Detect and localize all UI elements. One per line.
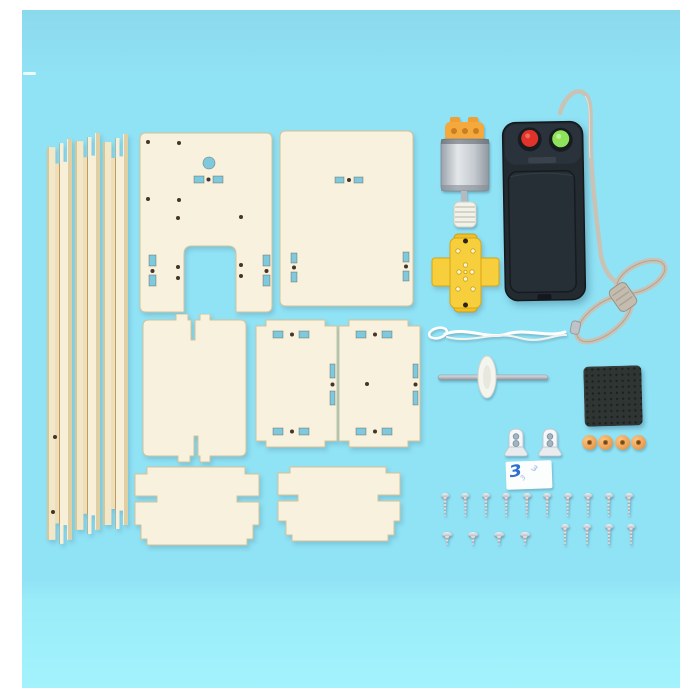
battery-door xyxy=(508,171,576,293)
pull-string xyxy=(425,318,575,350)
screw xyxy=(482,493,490,518)
axle-bracket xyxy=(503,427,529,458)
screw xyxy=(564,493,572,518)
coupler-pin-hole xyxy=(463,239,468,244)
screw xyxy=(583,524,591,547)
panel-side-right xyxy=(337,318,423,452)
panel-side-left xyxy=(254,318,340,452)
battery-controller xyxy=(498,116,602,308)
pulley-wheels xyxy=(582,435,646,450)
backdrop-glint xyxy=(23,72,36,75)
panel-gantry xyxy=(138,131,276,315)
dc-motor xyxy=(437,113,493,231)
panel-plain xyxy=(141,314,248,464)
screw xyxy=(605,493,613,518)
screw xyxy=(461,493,469,518)
screw xyxy=(502,493,510,518)
wooden-rail xyxy=(103,134,128,533)
axle-brackets xyxy=(503,427,563,458)
pulley-wheel xyxy=(615,435,630,450)
screw xyxy=(627,524,635,547)
screws-medium-row xyxy=(561,524,635,547)
screw xyxy=(520,532,530,548)
screw xyxy=(442,532,452,548)
screws-long-row xyxy=(441,493,633,518)
wooden-rail xyxy=(47,139,72,548)
controller-label-area xyxy=(528,157,556,163)
screw xyxy=(625,493,633,518)
wooden-rail xyxy=(75,133,100,538)
motor-shaft xyxy=(461,191,467,202)
panel-round-hole xyxy=(203,157,215,169)
panel-cabin-right xyxy=(276,465,408,547)
bracket-hole xyxy=(547,434,553,440)
sticker-faint-mark: 3 xyxy=(530,463,538,473)
panel-back xyxy=(278,129,415,308)
wooden-rails xyxy=(47,133,128,548)
screw xyxy=(584,493,592,518)
rail-hole xyxy=(51,510,55,514)
screws-flat-row xyxy=(442,532,530,548)
screw xyxy=(543,493,551,518)
sticker-faint-mark: 3 xyxy=(519,474,528,482)
bracket-hole xyxy=(513,434,519,440)
pulley-wheel xyxy=(582,435,597,450)
screw xyxy=(561,524,569,547)
screw xyxy=(494,532,504,548)
axle-bracket xyxy=(537,427,563,458)
screw xyxy=(523,493,531,518)
pulley-wheel xyxy=(631,435,646,450)
cross-coupler xyxy=(428,232,504,314)
coupler-pin-hole xyxy=(463,303,468,308)
adhesive-sticker: 3 3 3 xyxy=(506,460,553,490)
bracket-hole xyxy=(513,441,519,447)
screw xyxy=(605,524,613,547)
panel-cabin-left xyxy=(133,465,266,550)
axle-with-pulley xyxy=(434,352,554,402)
rail-hole xyxy=(53,435,57,439)
screw xyxy=(441,493,449,518)
worm-gear xyxy=(454,202,476,227)
pulley-wheel xyxy=(598,435,613,450)
kit-photo: 3 3 3 xyxy=(0,0,700,700)
controller-notch xyxy=(537,294,551,300)
motor-body xyxy=(441,139,489,191)
foam-pad xyxy=(583,365,643,426)
bracket-hole xyxy=(547,441,553,447)
screw xyxy=(468,532,478,548)
